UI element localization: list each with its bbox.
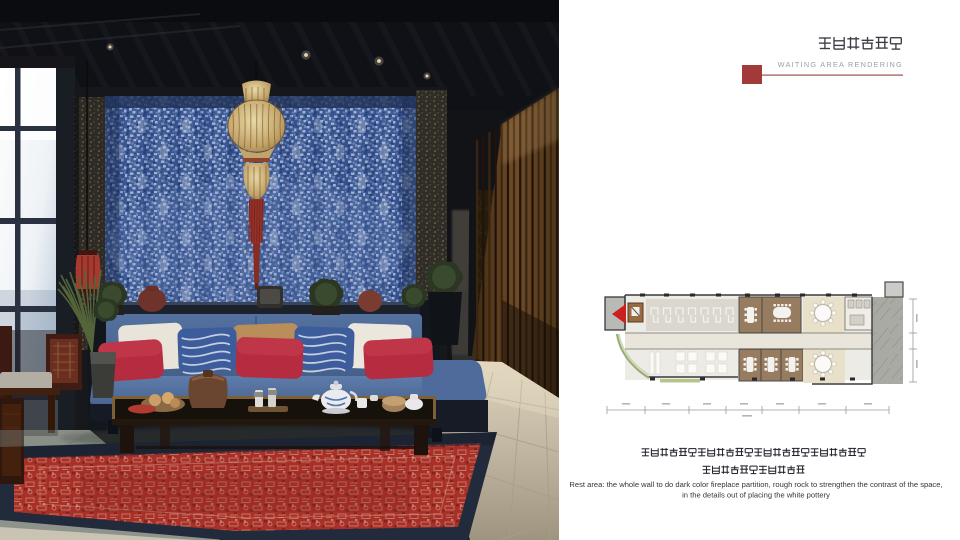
svg-text:Rest area: the whole wall to d: Rest area: the whole wall to do dark col… — [569, 480, 942, 489]
svg-text:in the details out of placing: in the details out of placing the white … — [682, 491, 830, 500]
svg-text:WAITING AREA RENDERING: WAITING AREA RENDERING — [778, 60, 903, 69]
